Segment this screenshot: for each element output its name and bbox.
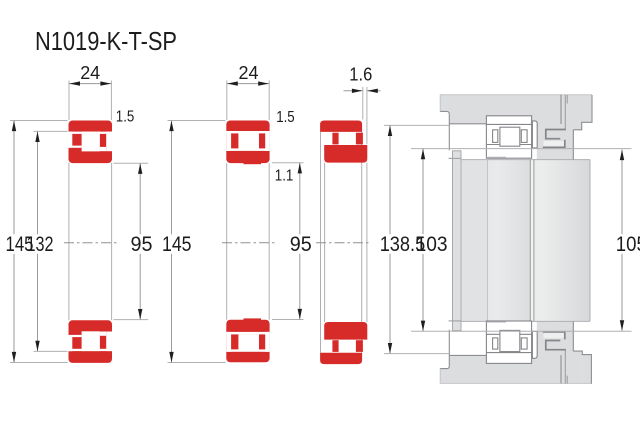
svg-text:N1019-K-T-SP: N1019-K-T-SP (35, 26, 177, 56)
svg-text:1.5: 1.5 (276, 109, 295, 126)
svg-text:1.5: 1.5 (116, 109, 135, 126)
svg-text:105: 105 (616, 233, 640, 256)
svg-text:95: 95 (131, 233, 153, 256)
svg-text:103: 103 (416, 233, 448, 256)
svg-text:1.6: 1.6 (349, 64, 372, 84)
svg-text:24: 24 (239, 63, 259, 83)
svg-text:145: 145 (162, 233, 192, 256)
svg-text:132: 132 (27, 233, 54, 256)
svg-text:1.1: 1.1 (275, 168, 294, 185)
svg-text:24: 24 (80, 63, 100, 83)
svg-text:95: 95 (290, 233, 312, 256)
